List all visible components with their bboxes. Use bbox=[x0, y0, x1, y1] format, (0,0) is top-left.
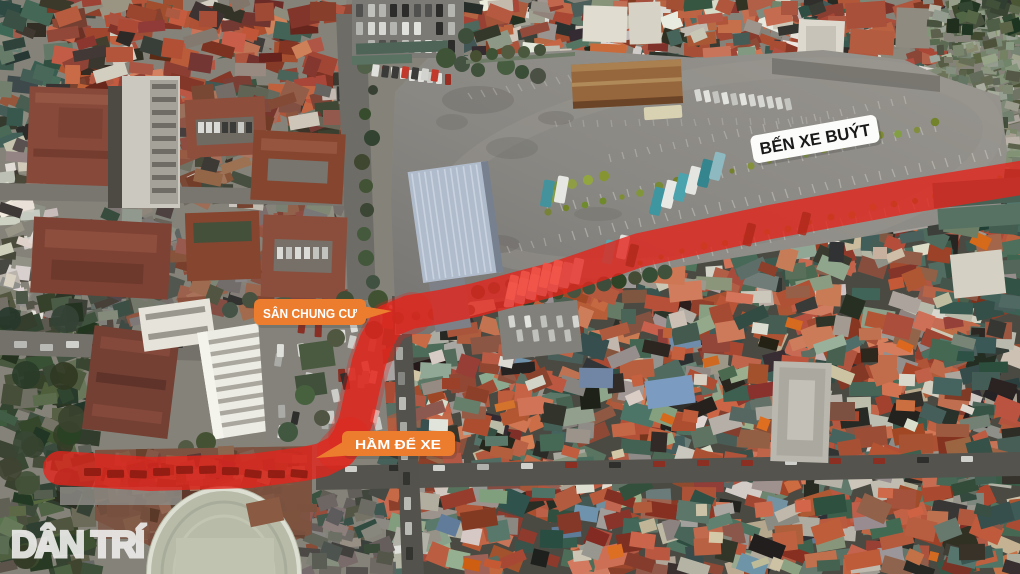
svg-text:HẦM ĐỂ XE: HẦM ĐỂ XE bbox=[355, 437, 441, 452]
svg-text:SÂN CHUNG CƯ: SÂN CHUNG CƯ bbox=[263, 306, 358, 321]
svg-text:DÂN TRÍ: DÂN TRÍ bbox=[11, 523, 147, 565]
